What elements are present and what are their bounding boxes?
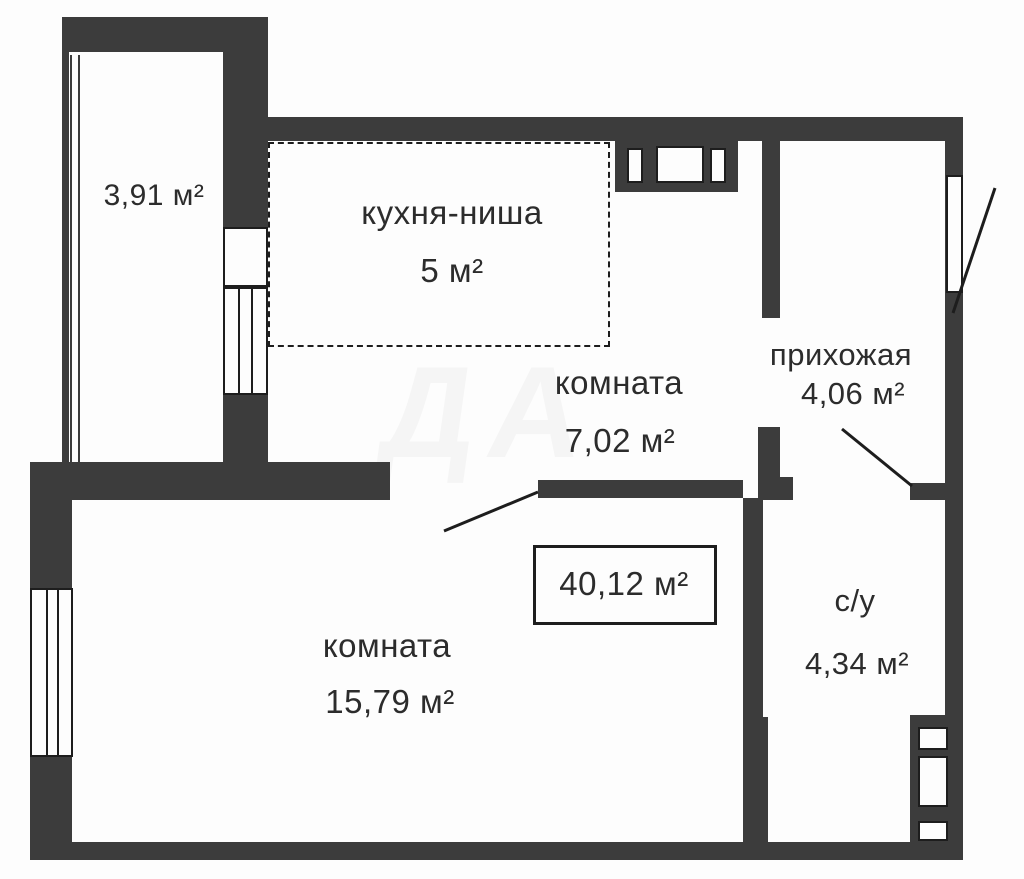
room-large-name-label: комната bbox=[323, 627, 451, 665]
room-small-area-label: 7,02 м² bbox=[565, 422, 676, 460]
room-small-name-label: комната bbox=[555, 364, 683, 402]
total-area-label: 40,12 м² bbox=[559, 565, 688, 603]
kitchen-area-label: 5 м² bbox=[420, 252, 483, 290]
room-large-area-label: 15,79 м² bbox=[325, 683, 454, 721]
entrance-door-swing bbox=[953, 188, 995, 313]
room-door-swing bbox=[444, 492, 538, 531]
kitchen-name-label: кухня-ниша bbox=[361, 194, 542, 232]
bathroom-area-label: 4,34 м² bbox=[805, 646, 909, 682]
door-swing-overlay bbox=[0, 0, 1024, 879]
balcony-area-label: 3,91 м² bbox=[104, 179, 205, 213]
hallway-area-label: 4,06 м² bbox=[801, 376, 905, 412]
bathroom-door-swing bbox=[842, 429, 912, 486]
bathroom-name-label: с/у bbox=[834, 583, 875, 619]
floor-plan: ДА 3,91 м² кухн bbox=[0, 0, 1024, 879]
hallway-name-label: прихожая bbox=[770, 337, 912, 373]
